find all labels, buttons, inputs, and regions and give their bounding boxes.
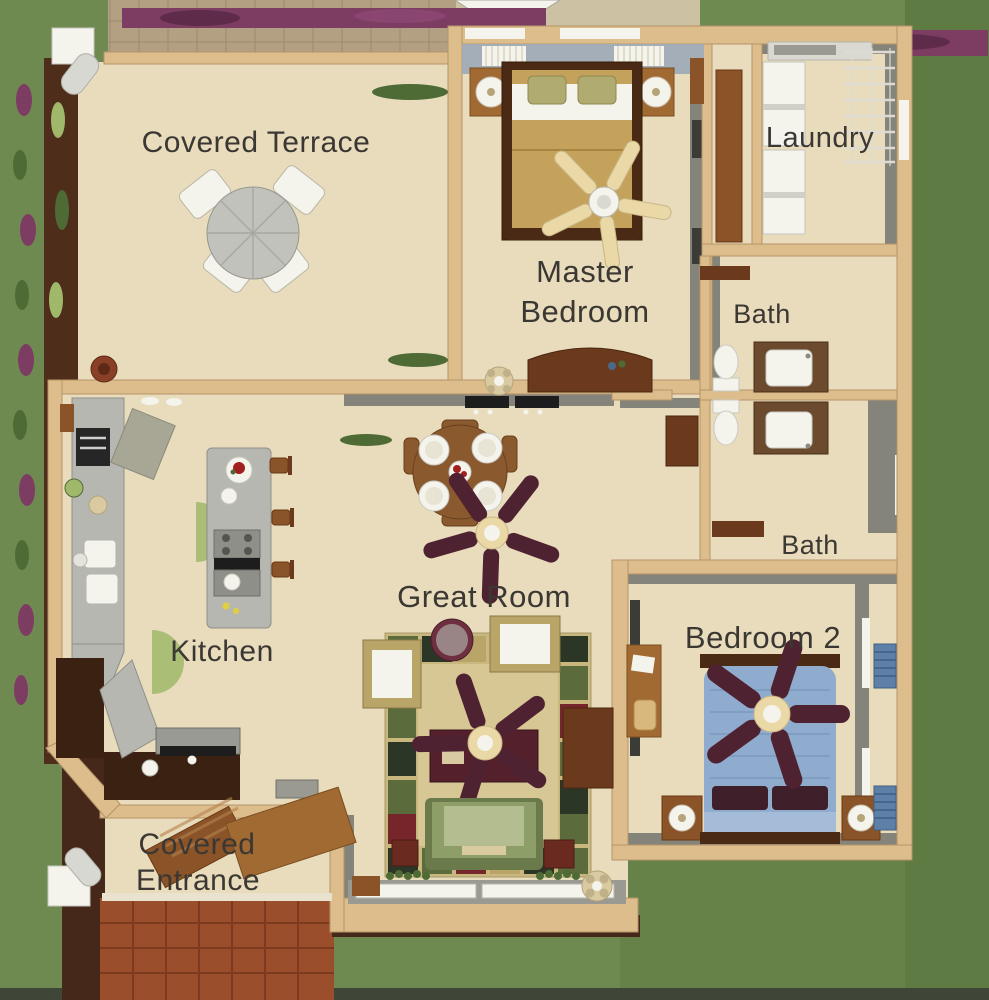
hall-door	[716, 70, 742, 242]
dresser	[528, 348, 652, 392]
pillow	[712, 786, 768, 810]
label-covered-terrace: Covered Terrace	[142, 126, 371, 159]
label-entrance-line2: Entrance	[136, 864, 260, 897]
pillow	[772, 786, 828, 810]
closet-shelf	[690, 58, 704, 104]
bowl	[89, 496, 107, 514]
wall-shelf	[515, 396, 559, 408]
label-bedroom-2: Bedroom 2	[685, 620, 841, 655]
label-great-room: Great Room	[397, 579, 571, 614]
bench	[712, 521, 764, 537]
wall-shelf	[465, 396, 509, 408]
end-table	[544, 840, 574, 868]
sofa	[425, 798, 543, 870]
kitchen-island	[207, 448, 271, 628]
vanity-sink	[754, 402, 828, 454]
hall-cabinet	[666, 416, 698, 466]
armchair-left	[363, 640, 421, 708]
decor-wheel	[485, 367, 513, 395]
armchair-right	[490, 616, 560, 672]
floor-plan-rendering: Covered Terrace Master Bedroom Laundry B…	[0, 0, 989, 1000]
shelf	[700, 266, 750, 280]
label-master-line1: Master	[536, 254, 634, 289]
label-bath-lower: Bath	[781, 530, 839, 560]
pillow	[578, 76, 616, 104]
floor-plan-page: Covered Terrace Master Bedroom Laundry B…	[0, 0, 989, 1000]
door-mat	[352, 876, 380, 896]
label-bath-upper: Bath	[733, 299, 791, 329]
dish	[166, 398, 182, 406]
label-entrance-line1: Covered	[139, 828, 256, 861]
pillow	[528, 76, 566, 104]
end-table	[392, 840, 418, 866]
vanity-sink	[754, 342, 828, 392]
toilet	[713, 400, 739, 445]
nightstand-left	[662, 796, 702, 840]
label-laundry: Laundry	[766, 122, 874, 154]
terrace-plant	[388, 353, 448, 367]
toilet	[713, 345, 739, 391]
floor-plant	[340, 434, 392, 446]
dish	[141, 397, 159, 405]
prep-sink	[142, 760, 158, 776]
desk-chair	[634, 700, 656, 730]
cooktop	[214, 530, 260, 558]
decor-wheel-corner	[582, 871, 612, 901]
flower-decor	[65, 479, 83, 497]
label-kitchen: Kitchen	[170, 635, 274, 668]
desk	[627, 645, 661, 737]
open-door	[563, 708, 613, 788]
label-master-line2: Bedroom	[520, 294, 649, 329]
terrace-plant	[372, 84, 448, 100]
